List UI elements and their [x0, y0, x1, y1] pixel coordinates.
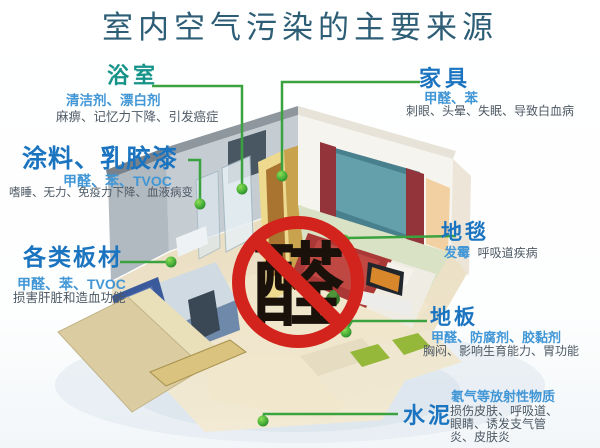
label-paint: 涂料、乳胶漆	[22, 145, 178, 174]
effects-carpet: 呼吸道疾病	[478, 246, 538, 260]
pollutants-cement: 氡气等放射性物质	[451, 390, 555, 405]
pollutants-boards: 甲醛、苯、TVOC	[17, 276, 126, 292]
infographic-canvas: 室内空气污染的主要来源 浴室 清洁剂、漂白剂 麻痹、记忆力下降、引发癌症 涂料、…	[0, 0, 600, 448]
carpet-detail-line: 发霉 呼吸道疾病	[444, 246, 538, 261]
label-floor: 地板	[430, 306, 478, 330]
ban-ring	[232, 216, 364, 348]
dot-bathroom	[237, 184, 248, 195]
dot-paint	[195, 199, 206, 210]
dot-boards	[166, 257, 177, 268]
label-carpet: 地毯	[441, 221, 489, 245]
formaldehyde-ban-sign: 醛	[232, 216, 364, 348]
dot-furniture	[277, 171, 288, 182]
effects-paint: 嗜睡、无力、免疫力下降、血液病变	[9, 187, 193, 200]
dot-cement	[258, 416, 269, 427]
curtain-left	[320, 142, 336, 220]
effects-furniture: 刺眼、头晕、失眠、导致白血病	[406, 105, 574, 119]
effects-cement: 损伤皮肤、呼吸道、眼睛、诱发支气管炎、皮肤炎	[450, 405, 568, 444]
pollutants-carpet: 发霉	[444, 245, 470, 260]
label-boards: 各类板材	[23, 244, 123, 270]
effects-bathroom: 麻痹、记忆力下降、引发癌症	[56, 110, 219, 124]
label-cement: 水泥	[403, 403, 453, 428]
effects-boards: 损害肝脏和造血功能	[13, 291, 126, 305]
pollutants-bathroom: 清洁剂、漂白剂	[66, 93, 161, 109]
label-furniture: 家具	[419, 66, 471, 91]
label-bathroom: 浴室	[107, 63, 159, 88]
page-title: 室内空气污染的主要来源	[0, 10, 600, 46]
effects-floor: 胸闷、影响生育能力、胃功能	[423, 345, 579, 359]
